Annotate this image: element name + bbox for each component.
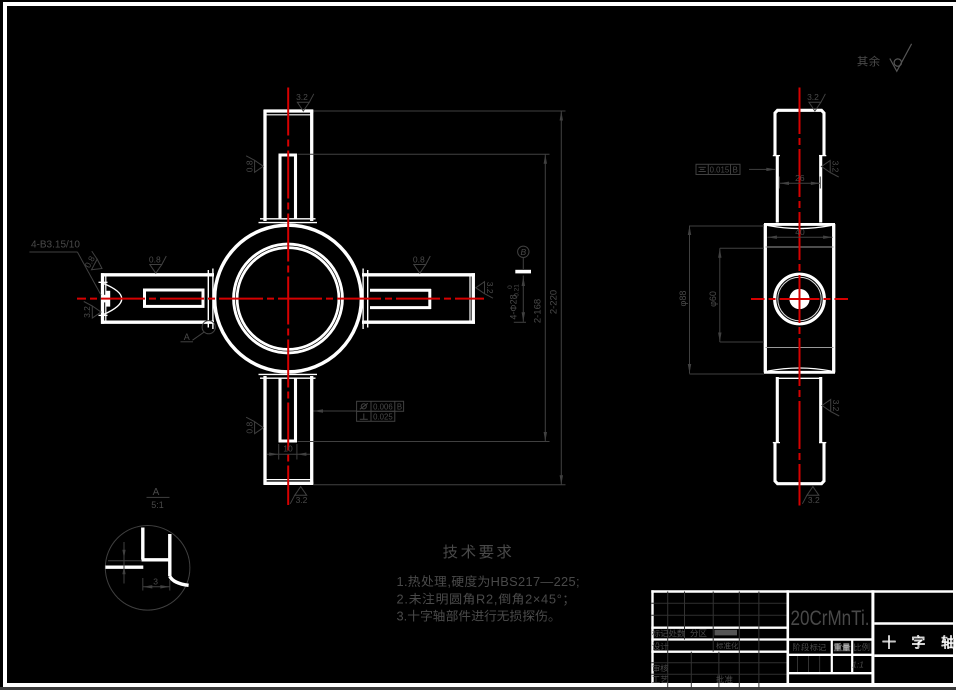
svg-text:1:1: 1:1 [852, 659, 864, 671]
svg-text:-0.21: -0.21 [511, 284, 521, 299]
svg-text:0.025: 0.025 [373, 412, 393, 423]
svg-text:5:1: 5:1 [151, 498, 164, 511]
svg-text:工艺: 工艺 [652, 674, 669, 686]
svg-text:批准: 批准 [715, 674, 733, 686]
svg-text:处数: 处数 [669, 628, 687, 640]
svg-text:26: 26 [795, 172, 805, 184]
svg-text:0.8: 0.8 [243, 422, 255, 434]
svg-text:十字轴: 十字轴 [882, 632, 956, 652]
svg-text:0.8: 0.8 [149, 254, 161, 266]
svg-text:B: B [733, 164, 738, 175]
svg-text:重量: 重量 [833, 642, 851, 654]
svg-text:10: 10 [283, 443, 293, 455]
svg-text:40: 40 [795, 226, 805, 238]
svg-text:φ88: φ88 [676, 291, 689, 307]
svg-text:分区: 分区 [690, 628, 708, 640]
svg-text:3.2: 3.2 [807, 91, 819, 103]
svg-text:3.2: 3.2 [808, 494, 820, 506]
svg-text:标记: 标记 [652, 628, 669, 640]
svg-text:技术要求: 技术要求 [442, 541, 514, 563]
svg-text:3.2: 3.2 [830, 400, 842, 412]
svg-text:3.2: 3.2 [296, 91, 308, 103]
svg-text:3.2: 3.2 [81, 306, 93, 318]
svg-text:B: B [397, 402, 402, 413]
svg-text:0.8: 0.8 [243, 160, 255, 172]
svg-text:A: A [184, 330, 190, 343]
svg-text:B: B [520, 246, 526, 258]
svg-text:2-168: 2-168 [530, 299, 544, 323]
svg-text:0.8: 0.8 [413, 254, 425, 266]
svg-text:2-220: 2-220 [546, 290, 560, 314]
svg-text:标准化: 标准化 [715, 641, 739, 652]
svg-text:φ60: φ60 [706, 291, 719, 307]
svg-text:4-B3.15/10: 4-B3.15/10 [31, 236, 80, 251]
svg-text:比例: 比例 [853, 642, 870, 654]
svg-text:阶段标记: 阶段标记 [792, 642, 826, 654]
svg-text:设计: 设计 [652, 641, 669, 653]
svg-text:3.2: 3.2 [830, 161, 842, 173]
svg-text:其余: 其余 [857, 54, 880, 70]
svg-text:A: A [153, 483, 160, 498]
svg-text:1.热处理,硬度为HBS217—225;: 1.热处理,硬度为HBS217—225; [397, 571, 580, 590]
svg-text:3: 3 [153, 576, 158, 588]
svg-text:3.2: 3.2 [484, 282, 496, 294]
svg-text:3.十字轴部件进行无损探伤。: 3.十字轴部件进行无损探伤。 [397, 606, 561, 625]
svg-text:0.015: 0.015 [710, 164, 730, 175]
svg-text:3.2: 3.2 [296, 494, 308, 506]
svg-text:20CrMnTi.: 20CrMnTi. [791, 602, 870, 632]
